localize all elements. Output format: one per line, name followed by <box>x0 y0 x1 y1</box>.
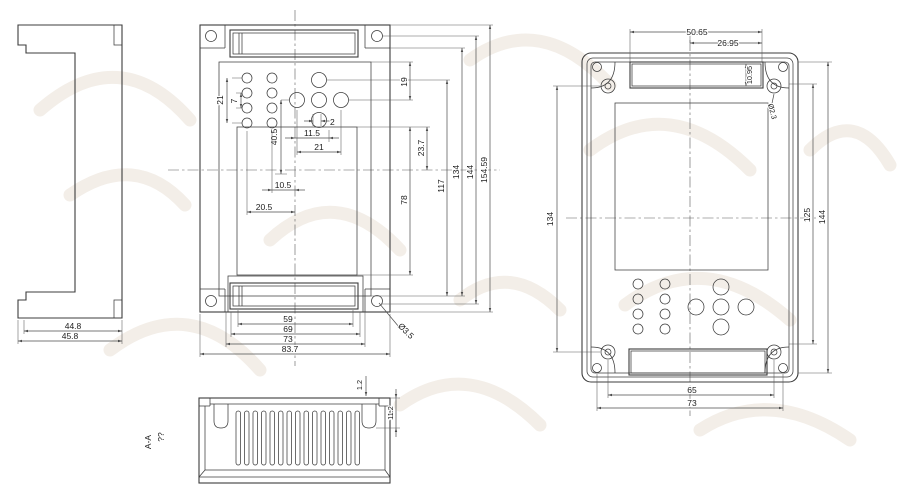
watermark <box>40 40 890 440</box>
section-post <box>214 404 228 428</box>
drawing-canvas: 44.8 45.8 <box>0 0 900 500</box>
dim-w3: 73 <box>283 334 293 344</box>
front-ear-hole <box>372 31 383 42</box>
dim-col2-center: 10.5 <box>275 180 292 190</box>
dim-ear-hole: Ø3.5 <box>396 321 416 341</box>
section-ribs <box>236 411 360 465</box>
section-label: A-A <box>143 435 153 450</box>
dim-btn-rows: 21 <box>215 95 225 105</box>
back-corner-hole <box>779 364 788 373</box>
back-corner-hole <box>593 364 602 373</box>
dim-btn-pitch: 7 <box>229 98 239 103</box>
section-view: 1.2 11.2 ?? A-A <box>143 376 400 483</box>
dim-w4: 83.7 <box>282 344 299 354</box>
dim-btn-half-span: 11.5 <box>304 128 320 138</box>
dim-w-boss: 65 <box>687 385 697 395</box>
dim-slot-height: 10.95 <box>745 66 754 84</box>
back-screw-bosses <box>601 79 781 359</box>
dim-wall: 1.2 <box>355 380 364 390</box>
back-view: 10.95 50.65 26.95 Ø2.3 1 <box>545 27 832 416</box>
dim-h-outer: 144 <box>817 210 827 224</box>
section-label-prefix: ?? <box>156 432 166 442</box>
dim-keypad-drop: 40.5 <box>269 128 279 145</box>
front-top-slot <box>230 30 358 57</box>
back-top-slot <box>630 62 763 88</box>
back-bottom-slot <box>629 349 767 375</box>
technical-drawing: 44.8 45.8 <box>0 0 900 500</box>
dim-col1-center: 20.5 <box>256 202 273 212</box>
dim-w1: 59 <box>283 314 293 324</box>
dim-slot-w: 50.65 <box>686 27 708 37</box>
dim-post: 11.2 <box>386 406 395 420</box>
dim-h5: 134 <box>451 165 461 179</box>
section-post <box>362 404 376 428</box>
dim-btn-offset: 2 <box>330 117 335 127</box>
dim-h-left: 134 <box>545 212 555 226</box>
front-keypad-left <box>242 73 277 128</box>
front-keypad-dpad <box>290 73 349 128</box>
dim-side-outer-width: 45.8 <box>62 331 79 341</box>
dim-w2: 69 <box>283 324 293 334</box>
dim-h3: 117 <box>436 179 446 193</box>
dim-h1: 19 <box>399 77 409 87</box>
front-view: 21 7 40.5 2 11.5 21 10.5 20.5 <box>168 10 500 366</box>
dim-side-inner-width: 44.8 <box>65 321 82 331</box>
front-ear-hole <box>206 296 217 307</box>
dim-btn-span: 21 <box>314 142 324 152</box>
front-ear-hole <box>206 31 217 42</box>
dim-w-hole: 73 <box>687 398 697 408</box>
dim-h4: 78 <box>399 195 409 205</box>
dim-h-inner: 125 <box>802 208 812 222</box>
dim-h2: 23.7 <box>416 139 426 156</box>
dim-slot-half: 26.95 <box>717 38 739 48</box>
dim-h6: 144 <box>465 165 475 179</box>
back-corner-hole <box>779 63 788 72</box>
dim-h7: 154.59 <box>479 157 489 183</box>
